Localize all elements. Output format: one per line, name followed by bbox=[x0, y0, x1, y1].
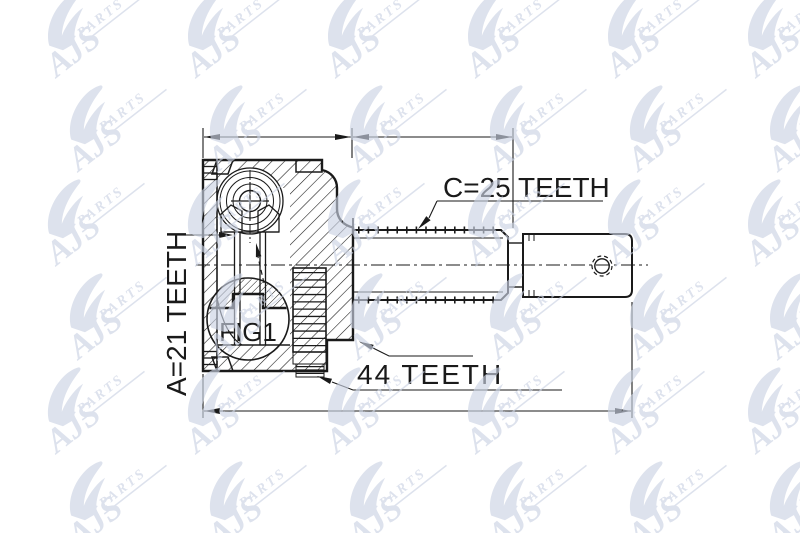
leader-arrow-icon bbox=[418, 216, 431, 229]
watermark-layer bbox=[20, 0, 800, 533]
drawing-layer: FIG1 C=25 TEETH bbox=[161, 128, 648, 418]
cv-joint-diagram: AJS PARTS bbox=[0, 0, 800, 533]
technical-diagram-page: AJS PARTS bbox=[0, 0, 800, 533]
dim-arrow-icon bbox=[335, 134, 351, 140]
pin-hole bbox=[595, 259, 609, 273]
